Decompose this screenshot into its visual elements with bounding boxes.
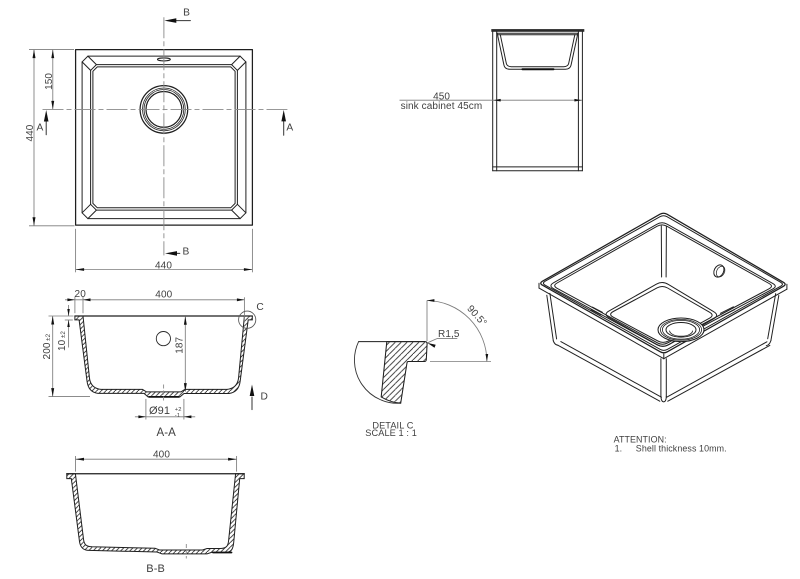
svg-text:Shell thickness 10mm.: Shell thickness 10mm. xyxy=(636,444,727,454)
svg-text:B: B xyxy=(182,246,189,257)
svg-text:sink cabinet 45cm: sink cabinet 45cm xyxy=(401,101,483,112)
svg-text:R1,5: R1,5 xyxy=(438,329,460,340)
svg-text:B: B xyxy=(183,8,190,19)
svg-text:SCALE 1 : 1: SCALE 1 : 1 xyxy=(365,428,417,438)
svg-text:A: A xyxy=(286,123,293,134)
svg-text:A-A: A-A xyxy=(156,427,176,439)
svg-text:400: 400 xyxy=(155,289,172,300)
svg-text:-1: -1 xyxy=(175,413,180,419)
svg-text:150: 150 xyxy=(44,73,55,90)
svg-text:1.: 1. xyxy=(615,444,623,454)
svg-text:A: A xyxy=(37,123,44,134)
svg-text:D: D xyxy=(260,391,267,402)
svg-text:187: 187 xyxy=(175,336,186,353)
svg-text:Ø91: Ø91 xyxy=(149,405,170,417)
svg-text:B-B: B-B xyxy=(146,563,165,575)
svg-text:440: 440 xyxy=(25,124,36,141)
svg-text:20: 20 xyxy=(75,289,87,300)
svg-text:C: C xyxy=(256,302,263,313)
svg-text:440: 440 xyxy=(155,260,172,271)
svg-text:400: 400 xyxy=(153,449,170,460)
